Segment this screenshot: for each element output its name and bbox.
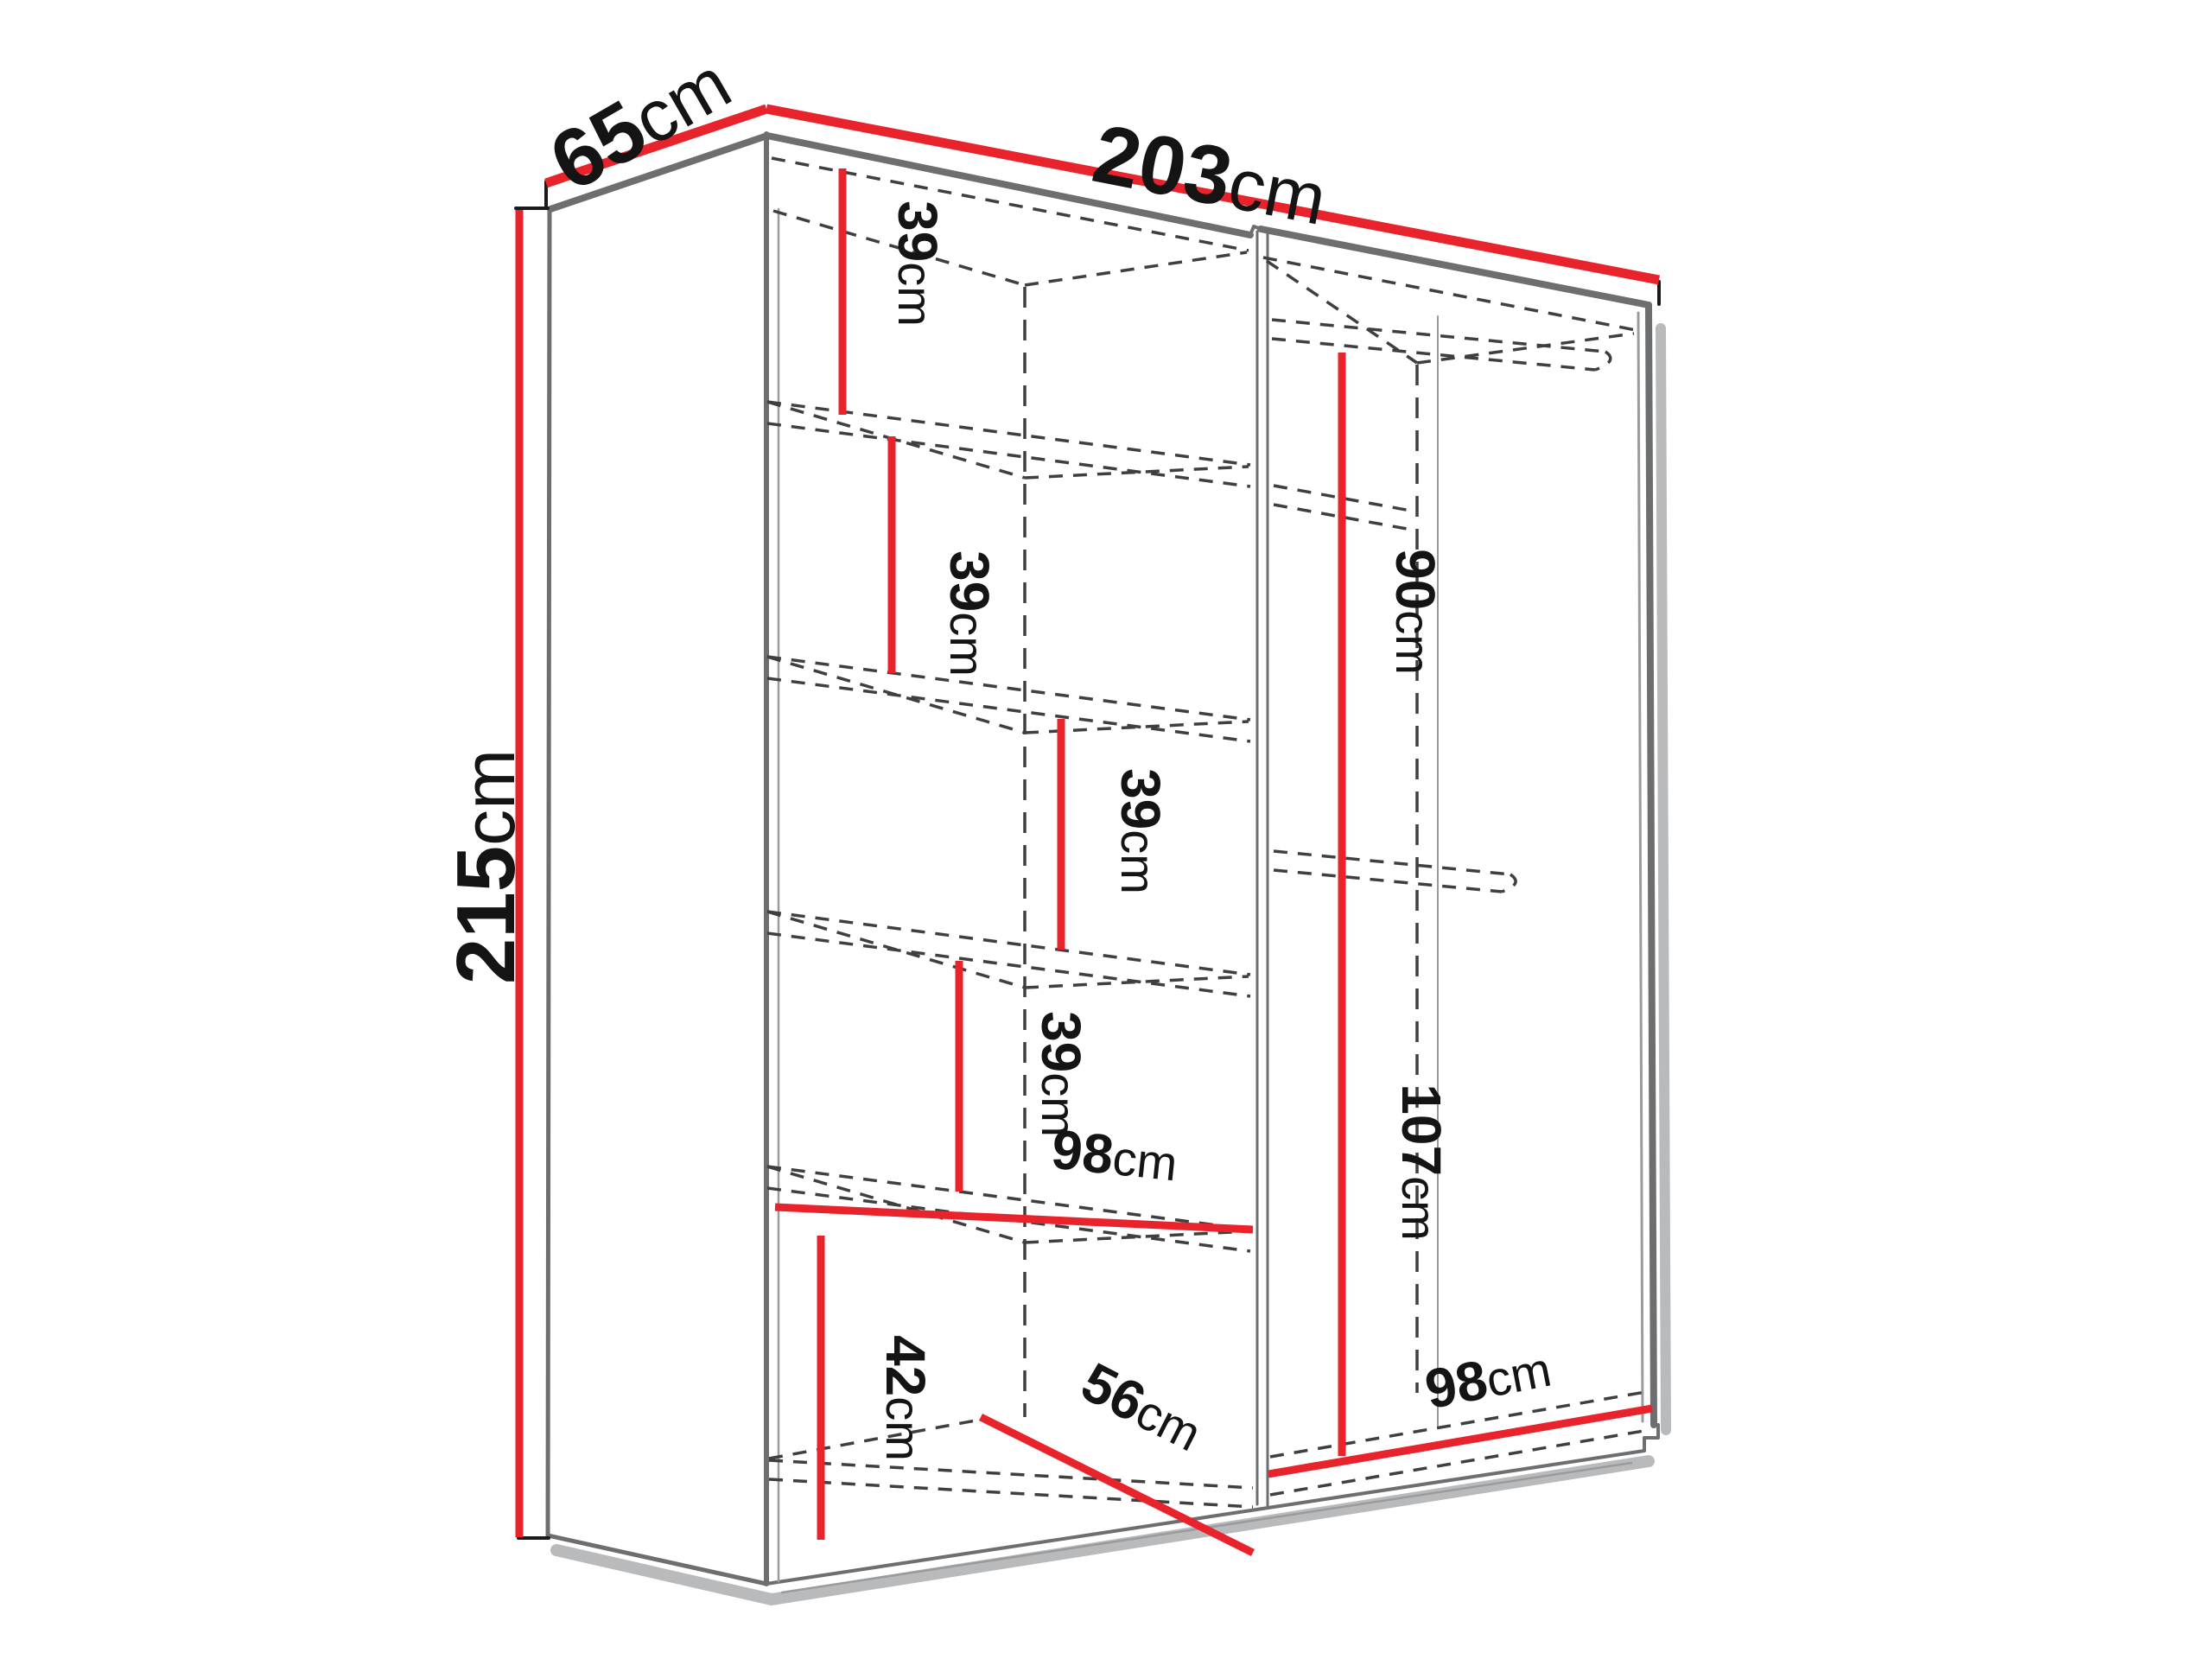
right-edge-inner-line xyxy=(1638,313,1643,1421)
right-edge xyxy=(1649,305,1654,1425)
dimension-caps xyxy=(516,181,1659,1538)
label-39cm-3: 39cm xyxy=(1109,768,1172,894)
label-98cm-right: 98cm xyxy=(1421,1336,1556,1421)
shelf4-left-diagonal xyxy=(767,1166,1025,1243)
shelf1-left-diagonal xyxy=(767,402,1025,478)
label-39cm-1: 39cm xyxy=(887,200,949,327)
label-90cm: 90cm xyxy=(1384,549,1446,675)
hanging-rail-top-line2 xyxy=(1272,339,1595,370)
shadow-right-edge xyxy=(1661,328,1666,1430)
interior-dashed-lines xyxy=(767,158,1650,1507)
dimension-labels: 65cm 203cm 215cm 39cm 39cm 39cm 39cm 98c… xyxy=(440,35,1555,1463)
side-panel-back-edge xyxy=(548,210,550,1535)
dimension-lines xyxy=(519,109,1659,1553)
hanging-rail-top-end-curl xyxy=(1595,352,1611,370)
hanging-rail-mid-line2 xyxy=(1274,870,1502,892)
label-39cm-2: 39cm xyxy=(938,550,1001,677)
label-42cm: 42cm xyxy=(874,1335,937,1461)
label-107cm: 107cm xyxy=(1390,1084,1452,1240)
hanging-rail-mid-line1 xyxy=(1274,851,1510,874)
label-65cm: 65cm xyxy=(535,35,745,209)
hanging-rail-mid-end-curl xyxy=(1502,874,1516,892)
wardrobe-dimension-diagram: 65cm 203cm 215cm 39cm 39cm 39cm 39cm 98c… xyxy=(0,0,2212,1659)
label-203cm: 203cm xyxy=(1086,107,1335,243)
rc-ceiling-left-diagonal xyxy=(1267,261,1417,363)
lc-ceiling-back xyxy=(1025,252,1247,285)
label-56cm: 56cm xyxy=(1072,1351,1213,1463)
label-98cm-left: 98cm xyxy=(1049,1118,1181,1193)
label-215cm: 215cm xyxy=(440,749,532,984)
shelf3-left-diagonal xyxy=(767,912,1025,988)
dim-line-98-left xyxy=(775,1207,1253,1230)
